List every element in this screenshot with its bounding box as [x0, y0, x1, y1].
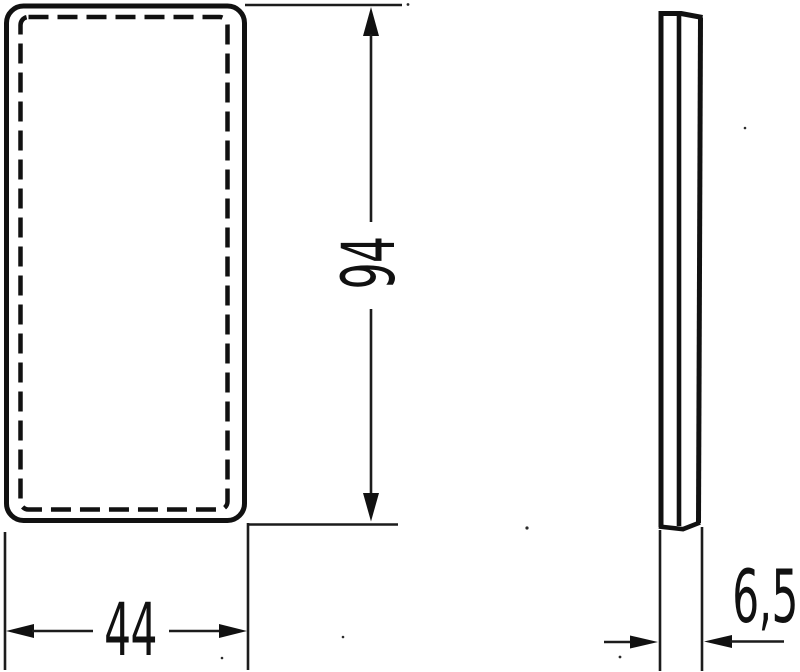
- dimension-height: 94: [245, 5, 412, 525]
- scan-speck: [619, 656, 622, 659]
- dim-height-label: 94: [328, 237, 412, 290]
- drawing-sheet: 94 44 6,5: [0, 0, 800, 672]
- technical-drawing-canvas: 94 44 6,5: [0, 0, 800, 672]
- scan-specks: [221, 3, 747, 659]
- front-view-outline: [7, 6, 245, 521]
- dim-height-arrowhead-bottom: [363, 493, 379, 522]
- side-view: [659, 14, 703, 530]
- dim-depth-arrowhead-right: [704, 635, 732, 648]
- dim-width-arrowhead-right: [219, 624, 247, 638]
- dimension-width: 44: [5, 523, 248, 672]
- dim-width-label: 44: [104, 589, 157, 672]
- front-view-dashed-inner-outline: [21, 17, 228, 510]
- dim-depth-arrowhead-left: [630, 636, 658, 649]
- scan-speck: [342, 636, 345, 639]
- scan-speck: [221, 657, 224, 660]
- dim-width-arrowhead-left: [6, 624, 34, 638]
- scan-speck: [744, 127, 747, 130]
- side-view-right-edge: [699, 18, 701, 524]
- dimension-depth: 6,5: [604, 527, 798, 671]
- scan-speck: [525, 526, 528, 529]
- front-view: [7, 6, 245, 521]
- dim-depth-label: 6,5: [732, 556, 798, 640]
- scan-speck: [407, 3, 410, 6]
- dim-height-arrowhead-top: [363, 7, 379, 36]
